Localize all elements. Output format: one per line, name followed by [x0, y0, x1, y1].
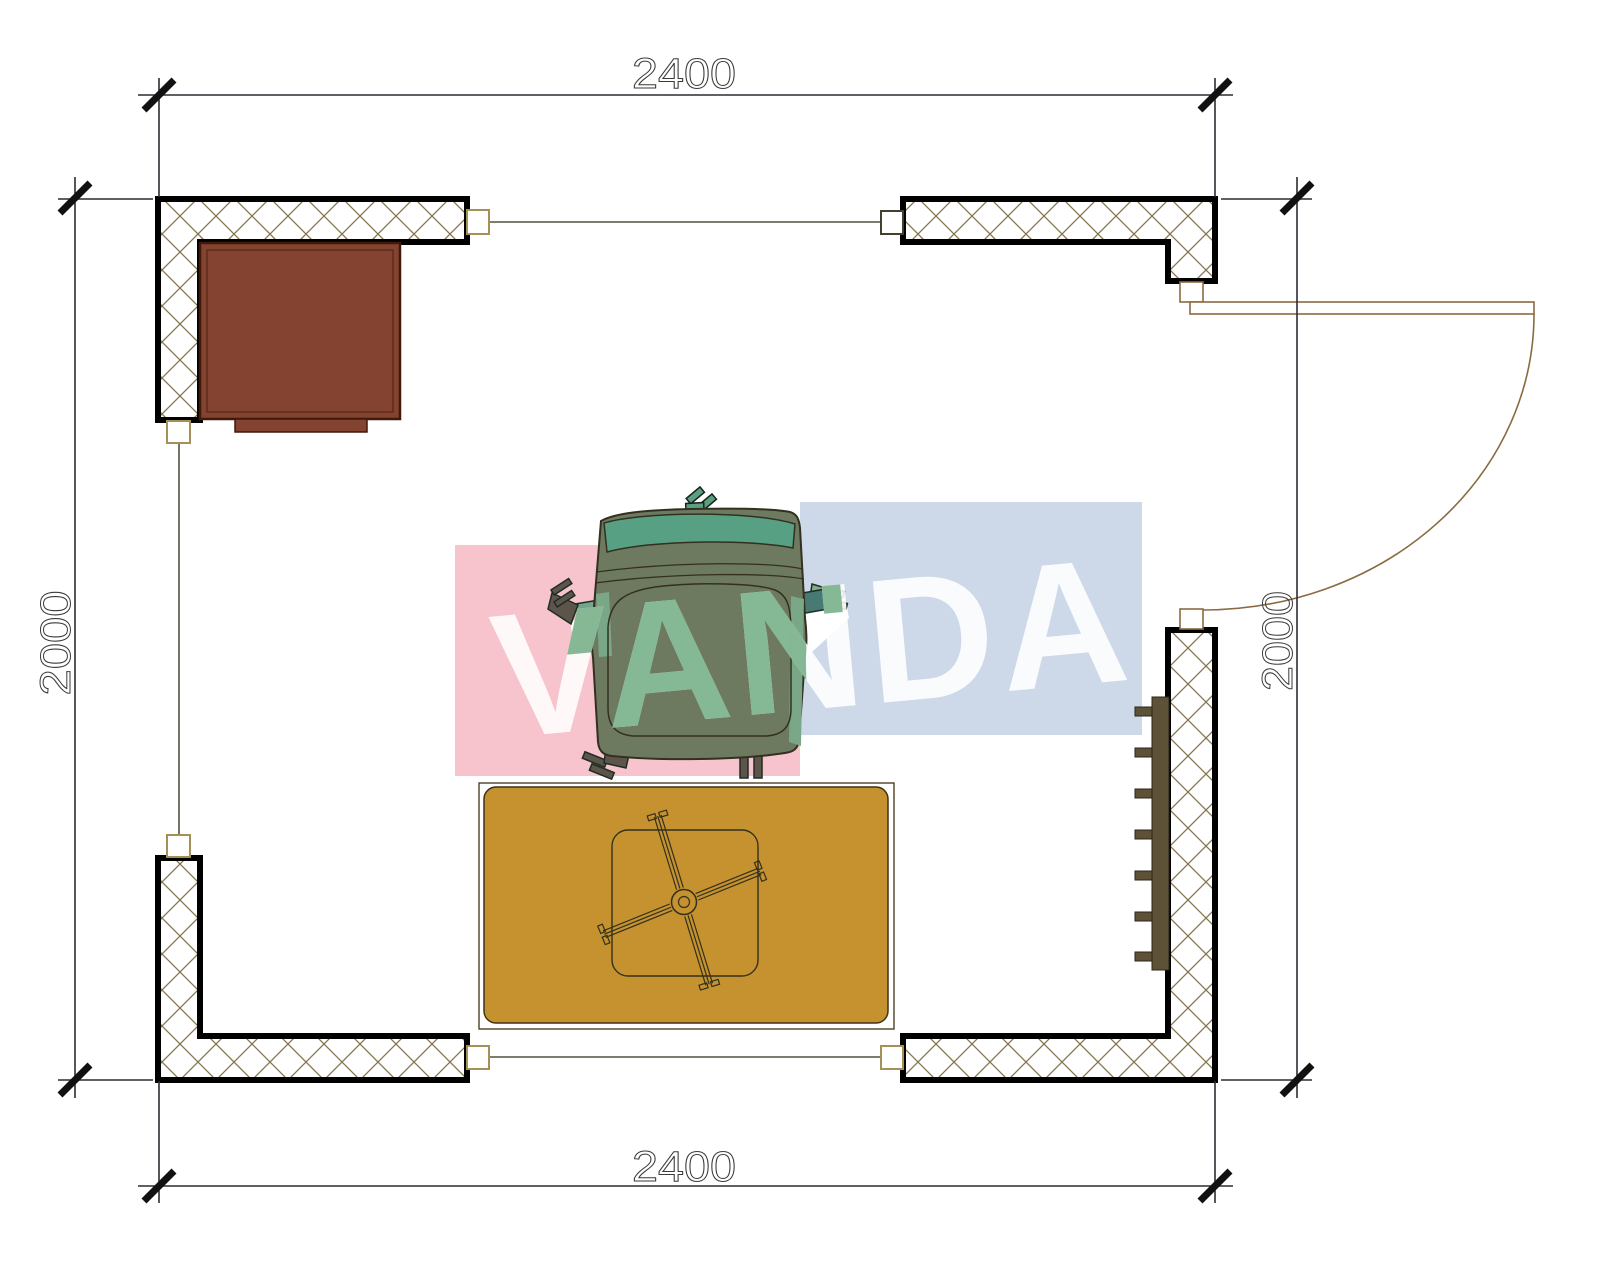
svg-text:2400: 2400: [632, 1143, 736, 1191]
svg-text:2400: 2400: [632, 50, 736, 98]
svg-text:2000: 2000: [32, 591, 80, 696]
svg-text:2000: 2000: [1254, 591, 1302, 691]
